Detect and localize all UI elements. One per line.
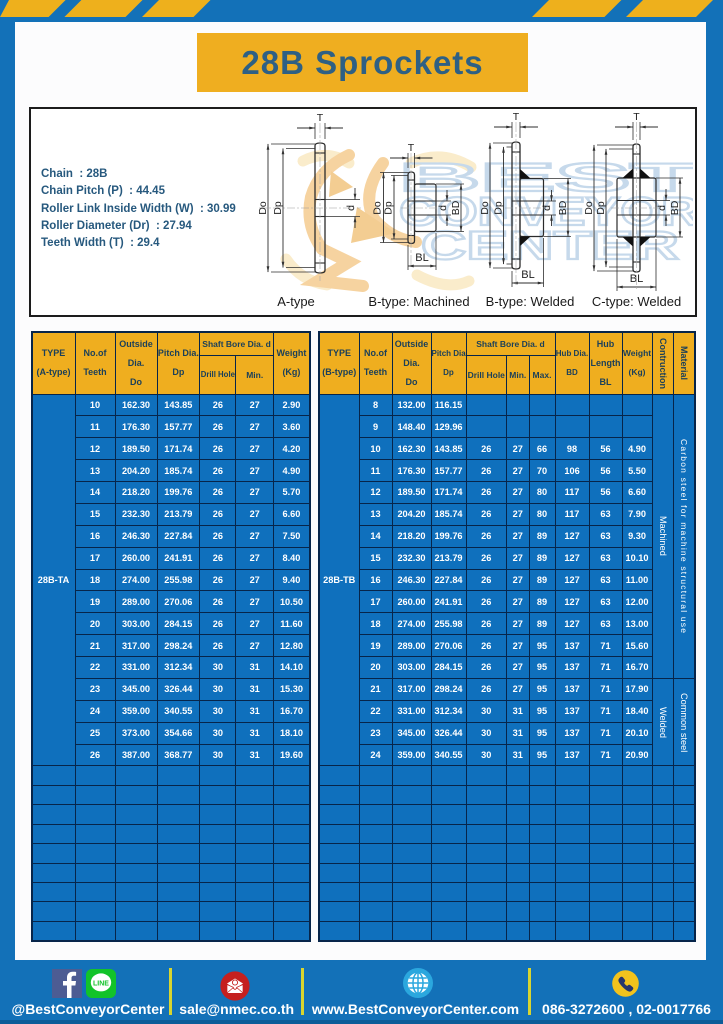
svg-text:BD: BD bbox=[450, 200, 462, 215]
svg-text:Dp: Dp bbox=[492, 201, 504, 215]
svg-text:Do: Do bbox=[583, 201, 595, 215]
svg-text:A-type: A-type bbox=[277, 294, 315, 309]
svg-text:Do: Do bbox=[257, 201, 269, 215]
svg-text:B-type: Welded: B-type: Welded bbox=[486, 294, 575, 309]
svg-text:Dp: Dp bbox=[272, 201, 284, 215]
svg-text:LINE: LINE bbox=[93, 981, 109, 988]
svg-text:d: d bbox=[656, 205, 668, 211]
svg-text:BL: BL bbox=[415, 252, 428, 264]
svg-text:Do: Do bbox=[479, 201, 491, 215]
svg-text:d: d bbox=[541, 205, 553, 211]
svg-text:T: T bbox=[633, 111, 640, 123]
svg-text:C-type: Welded: C-type: Welded bbox=[592, 294, 681, 309]
svg-text:BD: BD bbox=[557, 200, 569, 215]
svg-text:BD: BD bbox=[669, 200, 681, 215]
svg-text:T: T bbox=[513, 111, 520, 123]
svg-text:BL: BL bbox=[521, 269, 534, 281]
svg-text:T: T bbox=[408, 142, 415, 154]
svg-text:B-type: Machined: B-type: Machined bbox=[368, 294, 469, 309]
svg-text:Dp: Dp bbox=[382, 201, 394, 215]
svg-text:T: T bbox=[317, 112, 324, 124]
svg-text:d: d bbox=[345, 205, 357, 211]
svg-text:Dp: Dp bbox=[595, 201, 607, 215]
svg-text:d: d bbox=[437, 205, 449, 211]
